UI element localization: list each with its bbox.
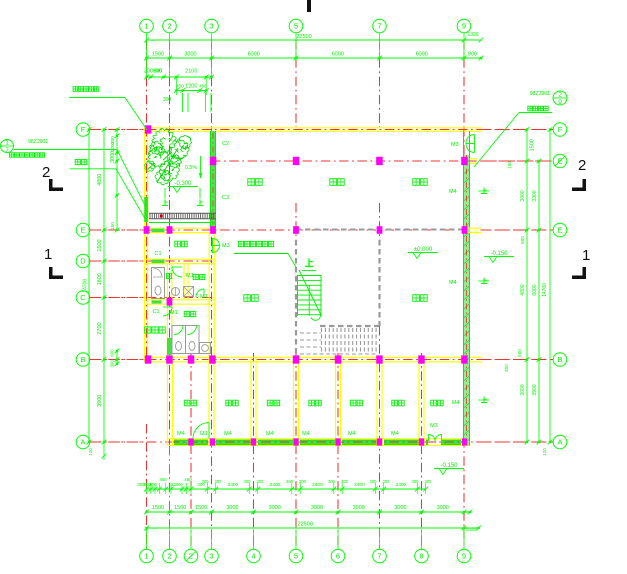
svg-text:9: 9 bbox=[462, 552, 466, 561]
svg-text:1320: 1320 bbox=[467, 32, 478, 38]
svg-text:C1: C1 bbox=[154, 251, 161, 257]
svg-text:600: 600 bbox=[517, 349, 522, 357]
svg-text:300: 300 bbox=[215, 479, 223, 484]
svg-text:22500: 22500 bbox=[298, 522, 313, 528]
svg-text:M3: M3 bbox=[222, 243, 230, 249]
svg-text:4: 4 bbox=[251, 552, 255, 561]
svg-text:2: 2 bbox=[42, 164, 50, 181]
svg-text:B: B bbox=[80, 355, 85, 364]
svg-text:1500: 1500 bbox=[152, 52, 164, 58]
svg-text:M4: M4 bbox=[452, 400, 460, 406]
svg-text:1500: 1500 bbox=[174, 505, 186, 511]
svg-text:1500: 1500 bbox=[195, 505, 207, 511]
svg-text:M4: M4 bbox=[224, 431, 232, 437]
svg-text:M3: M3 bbox=[451, 142, 459, 148]
svg-text:1200: 1200 bbox=[185, 84, 197, 90]
svg-text:600: 600 bbox=[520, 236, 525, 244]
svg-text:5: 5 bbox=[294, 552, 298, 561]
svg-text:C: C bbox=[80, 293, 86, 302]
svg-text:8: 8 bbox=[419, 552, 423, 561]
svg-text:300: 300 bbox=[383, 479, 391, 484]
svg-text:5: 5 bbox=[294, 22, 298, 31]
svg-text:M4: M4 bbox=[449, 189, 457, 195]
svg-text:1200: 1200 bbox=[171, 482, 182, 487]
svg-text:120: 120 bbox=[542, 448, 547, 456]
svg-text:22500: 22500 bbox=[296, 34, 311, 40]
svg-text:450: 450 bbox=[504, 364, 509, 372]
svg-text:2100: 2100 bbox=[185, 69, 197, 75]
svg-text:F: F bbox=[558, 125, 563, 134]
svg-text:3: 3 bbox=[209, 552, 213, 561]
svg-text:150: 150 bbox=[507, 161, 512, 169]
svg-text:3000: 3000 bbox=[269, 505, 281, 511]
svg-text:M1: M1 bbox=[200, 294, 208, 300]
svg-text:1: 1 bbox=[582, 247, 590, 264]
svg-text:1020: 1020 bbox=[466, 527, 477, 533]
svg-text:900: 900 bbox=[468, 52, 477, 58]
svg-text:14700: 14700 bbox=[83, 279, 89, 293]
svg-text:E: E bbox=[80, 226, 85, 235]
svg-text:7: 7 bbox=[5, 147, 9, 154]
svg-text:1500: 1500 bbox=[97, 239, 103, 251]
svg-text:E: E bbox=[557, 157, 562, 166]
svg-text:450: 450 bbox=[159, 477, 167, 482]
svg-text:0.5%: 0.5% bbox=[185, 165, 198, 171]
svg-text:9: 9 bbox=[462, 22, 466, 31]
svg-text:2: 2 bbox=[578, 157, 586, 174]
svg-text:2400: 2400 bbox=[396, 482, 407, 488]
svg-text:120: 120 bbox=[88, 448, 93, 456]
svg-text:1: 1 bbox=[144, 552, 148, 561]
svg-text:2400: 2400 bbox=[228, 482, 239, 488]
svg-text:98ZJ901: 98ZJ901 bbox=[530, 91, 550, 97]
svg-text:3300: 3300 bbox=[532, 190, 538, 201]
svg-text:3: 3 bbox=[209, 22, 213, 31]
svg-text:1: 1 bbox=[5, 140, 9, 147]
svg-text:300: 300 bbox=[244, 479, 252, 484]
svg-text:2400: 2400 bbox=[354, 482, 365, 488]
svg-text:M1: M1 bbox=[186, 273, 194, 279]
svg-text:600: 600 bbox=[110, 349, 115, 357]
svg-text:M4: M4 bbox=[302, 431, 310, 437]
svg-text:3000: 3000 bbox=[226, 505, 238, 511]
svg-text:6000: 6000 bbox=[532, 284, 538, 295]
svg-text:3000: 3000 bbox=[520, 190, 526, 201]
svg-text:A: A bbox=[80, 438, 85, 447]
svg-text:3000: 3000 bbox=[394, 505, 406, 511]
svg-text:3000: 3000 bbox=[437, 505, 449, 511]
svg-text:C1: C1 bbox=[152, 309, 159, 315]
svg-text:M4: M4 bbox=[391, 431, 399, 437]
svg-text:7: 7 bbox=[377, 552, 381, 561]
svg-text:1800: 1800 bbox=[97, 273, 103, 285]
svg-text:D: D bbox=[80, 257, 86, 266]
svg-text:300: 300 bbox=[328, 479, 336, 484]
svg-text:300: 300 bbox=[149, 482, 157, 487]
svg-text:2700: 2700 bbox=[97, 322, 103, 334]
svg-text:M4: M4 bbox=[266, 431, 274, 437]
svg-text:1500: 1500 bbox=[530, 139, 536, 151]
svg-text:300: 300 bbox=[257, 479, 265, 484]
svg-text:M4: M4 bbox=[177, 431, 185, 437]
svg-text:300: 300 bbox=[110, 360, 115, 368]
svg-text:3900: 3900 bbox=[532, 384, 538, 395]
svg-text:450: 450 bbox=[184, 477, 192, 482]
svg-text:9: 9 bbox=[558, 99, 562, 106]
svg-text:2400: 2400 bbox=[312, 482, 323, 488]
svg-text:300: 300 bbox=[341, 479, 349, 484]
svg-text:14700: 14700 bbox=[542, 283, 548, 297]
svg-text:A: A bbox=[557, 438, 562, 447]
svg-text:2: 2 bbox=[167, 552, 171, 561]
svg-text:6000: 6000 bbox=[332, 52, 344, 58]
svg-text:4800: 4800 bbox=[97, 174, 103, 186]
svg-text:300: 300 bbox=[370, 479, 378, 484]
svg-text:300: 300 bbox=[425, 479, 433, 484]
svg-text:1500: 1500 bbox=[152, 505, 164, 511]
svg-text:M4: M4 bbox=[348, 431, 356, 437]
svg-text:450: 450 bbox=[176, 84, 184, 89]
svg-text:6000: 6000 bbox=[416, 52, 428, 58]
svg-text:3900: 3900 bbox=[97, 395, 103, 407]
svg-text:300: 300 bbox=[197, 482, 205, 487]
svg-text:C3: C3 bbox=[222, 195, 229, 201]
svg-text:3000: 3000 bbox=[184, 52, 196, 58]
svg-text:300: 300 bbox=[412, 479, 420, 484]
svg-text:1: 1 bbox=[144, 22, 148, 31]
svg-text:7: 7 bbox=[377, 22, 381, 31]
svg-text:3000: 3000 bbox=[311, 505, 323, 511]
svg-text:150: 150 bbox=[110, 222, 115, 230]
svg-text:6000: 6000 bbox=[248, 52, 260, 58]
svg-text:98ZJ901: 98ZJ901 bbox=[28, 139, 48, 145]
svg-text:3000: 3000 bbox=[353, 505, 365, 511]
svg-text:F: F bbox=[81, 125, 86, 134]
svg-text:3000: 3000 bbox=[520, 384, 526, 395]
svg-text:4800: 4800 bbox=[520, 284, 526, 295]
svg-text:2: 2 bbox=[167, 22, 171, 31]
svg-text:300: 300 bbox=[299, 479, 307, 484]
svg-text:M3: M3 bbox=[430, 423, 438, 429]
svg-text:900: 900 bbox=[154, 69, 163, 75]
svg-text:300: 300 bbox=[286, 479, 294, 484]
svg-text:C2: C2 bbox=[222, 141, 229, 147]
svg-text:B: B bbox=[557, 355, 562, 364]
svg-text:M1: M1 bbox=[200, 431, 208, 437]
svg-text:E: E bbox=[557, 226, 562, 235]
svg-text:2: 2 bbox=[189, 552, 193, 561]
svg-text:2: 2 bbox=[558, 92, 562, 99]
svg-text:2400: 2400 bbox=[270, 482, 281, 488]
svg-text:300: 300 bbox=[163, 97, 172, 103]
svg-text:1200: 1200 bbox=[110, 141, 115, 152]
svg-text:6: 6 bbox=[336, 552, 340, 561]
svg-text:1: 1 bbox=[44, 246, 52, 263]
svg-text:M1: M1 bbox=[170, 310, 178, 316]
svg-text:M4: M4 bbox=[449, 280, 457, 286]
